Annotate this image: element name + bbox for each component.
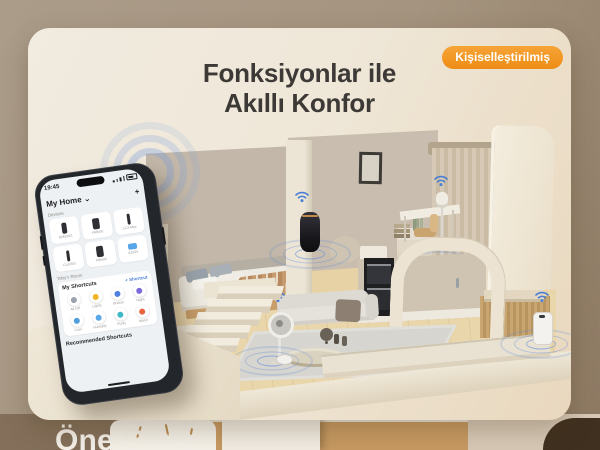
stair-step [216,286,284,300]
icon-dot [139,308,146,315]
device-tile: AJ500 [116,234,149,263]
shortcut-icon-drop [91,310,106,325]
book-stack [394,224,410,228]
shortcut-name: Purify [117,321,126,326]
device-icon-purifier [92,217,100,229]
smart-air-purifier [300,212,320,252]
device-tile: RB500 [84,239,117,268]
device-icon-humidifier [96,245,104,257]
wifi-icon [433,174,449,187]
section-heading: Öne Çıkan [55,424,205,450]
device-tile: HM500S [48,216,81,245]
promo-title-line1: Fonksiyonlar ile [28,58,571,88]
shortcut-name: Cool [74,327,82,332]
shortcuts-card: My Shortcuts + Shortcut All Off Lights [57,270,158,337]
shortcuts-grid: All Off Lights Breeze Night [63,283,154,334]
wifi-icon [534,290,550,303]
device-icon-heater [61,222,67,234]
shortcut: Night [128,283,150,304]
device-name: HM500S [59,233,73,239]
shortcut-name: All Off [70,306,80,311]
device-tile: HM500 [80,211,113,240]
shortcut-name: Warm [139,318,149,323]
add-device-icon: + [134,187,140,197]
ripple-ring [231,346,313,376]
sofa-arm [365,294,380,320]
shortcut: Breeze [107,286,129,307]
promo-card: Kişiselleştirilmiş Fonksiyonlar ile Akıl… [28,28,571,420]
smart-floor-lamp [436,192,448,208]
stair-step [205,299,273,313]
shortcut-icon-power [66,292,81,307]
promo-title-line2: Akıllı Konfor [28,88,571,118]
shortcut-name: Lights [92,303,102,308]
canvas-panel [222,418,320,450]
add-shortcut-button: + Shortcut [125,274,148,282]
status-icons [112,173,138,182]
robot-vacuum [276,354,293,365]
home-label: My Home [46,195,82,209]
shortcut-icon-sun [135,304,150,319]
signal-icon [123,176,125,181]
home-indicator [108,381,130,386]
shortcut-icon-snow [69,313,84,328]
shortcut: Warm [131,303,153,324]
shortcut-name: Night [136,297,145,302]
promo-page: Öne Çıkan Kişiselleştirilmiş Fonksiyonla… [0,0,600,450]
console-decor [334,334,339,344]
icon-dot [92,293,99,300]
wifi-icon [294,190,310,203]
device-icon-fan [66,250,71,261]
icon-dot [117,311,124,318]
shortcut-icon-air [113,307,128,322]
shortcut: Humidify [88,309,110,330]
shortcut-icon-bulb [88,289,103,304]
device-name: HM500 [92,229,104,235]
wall-art-frame [359,152,383,184]
chevron-down-icon: ⌄ [83,194,91,204]
shortcut: Lights [85,289,107,310]
shortcut-icon-moon [132,283,147,298]
status-time: 19:45 [44,184,60,192]
shortcut: All Off [63,292,85,313]
desk-leg [404,216,406,242]
smart-humidifier [533,312,553,345]
battery-icon [126,173,138,180]
shortcut-name: Humidify [93,324,107,330]
fan-hub [276,320,283,327]
device-icon-lamp [126,213,131,224]
desk-leg [452,210,454,236]
device-name: AJ500 [128,250,138,255]
shortcut-name: Breeze [113,300,125,306]
device-tile: CL605G [52,243,85,272]
icon-dot [95,314,102,321]
device-tile: LC3 Max [113,207,146,236]
signal-icon [116,179,118,182]
shortcut-icon-fan [110,286,125,301]
device-grid: HM500S HM500 LC3 Max CL605G [48,207,148,273]
shortcut: Purify [110,306,132,327]
signal-icon [119,177,121,181]
icon-dot [136,287,143,294]
side-table [320,328,333,341]
icon-dot [114,290,121,297]
icon-dot [70,296,77,303]
device-name: CL605G [63,261,76,267]
sofa-throw [335,299,361,322]
volume-button [42,256,45,266]
volume-button [40,236,44,250]
phone-screen: 19:45 My Home ⌄ + Devices [38,167,171,393]
device-name: LC3 Max [122,224,136,230]
promo-title: Fonksiyonlar ile Akıllı Konfor [28,58,571,118]
shortcut: Cool [66,313,88,334]
signal-icon [113,180,115,182]
desk-chair-back [430,214,438,232]
icon-dot [73,317,80,324]
device-name: RB500 [96,257,107,262]
stair-step [194,312,262,326]
